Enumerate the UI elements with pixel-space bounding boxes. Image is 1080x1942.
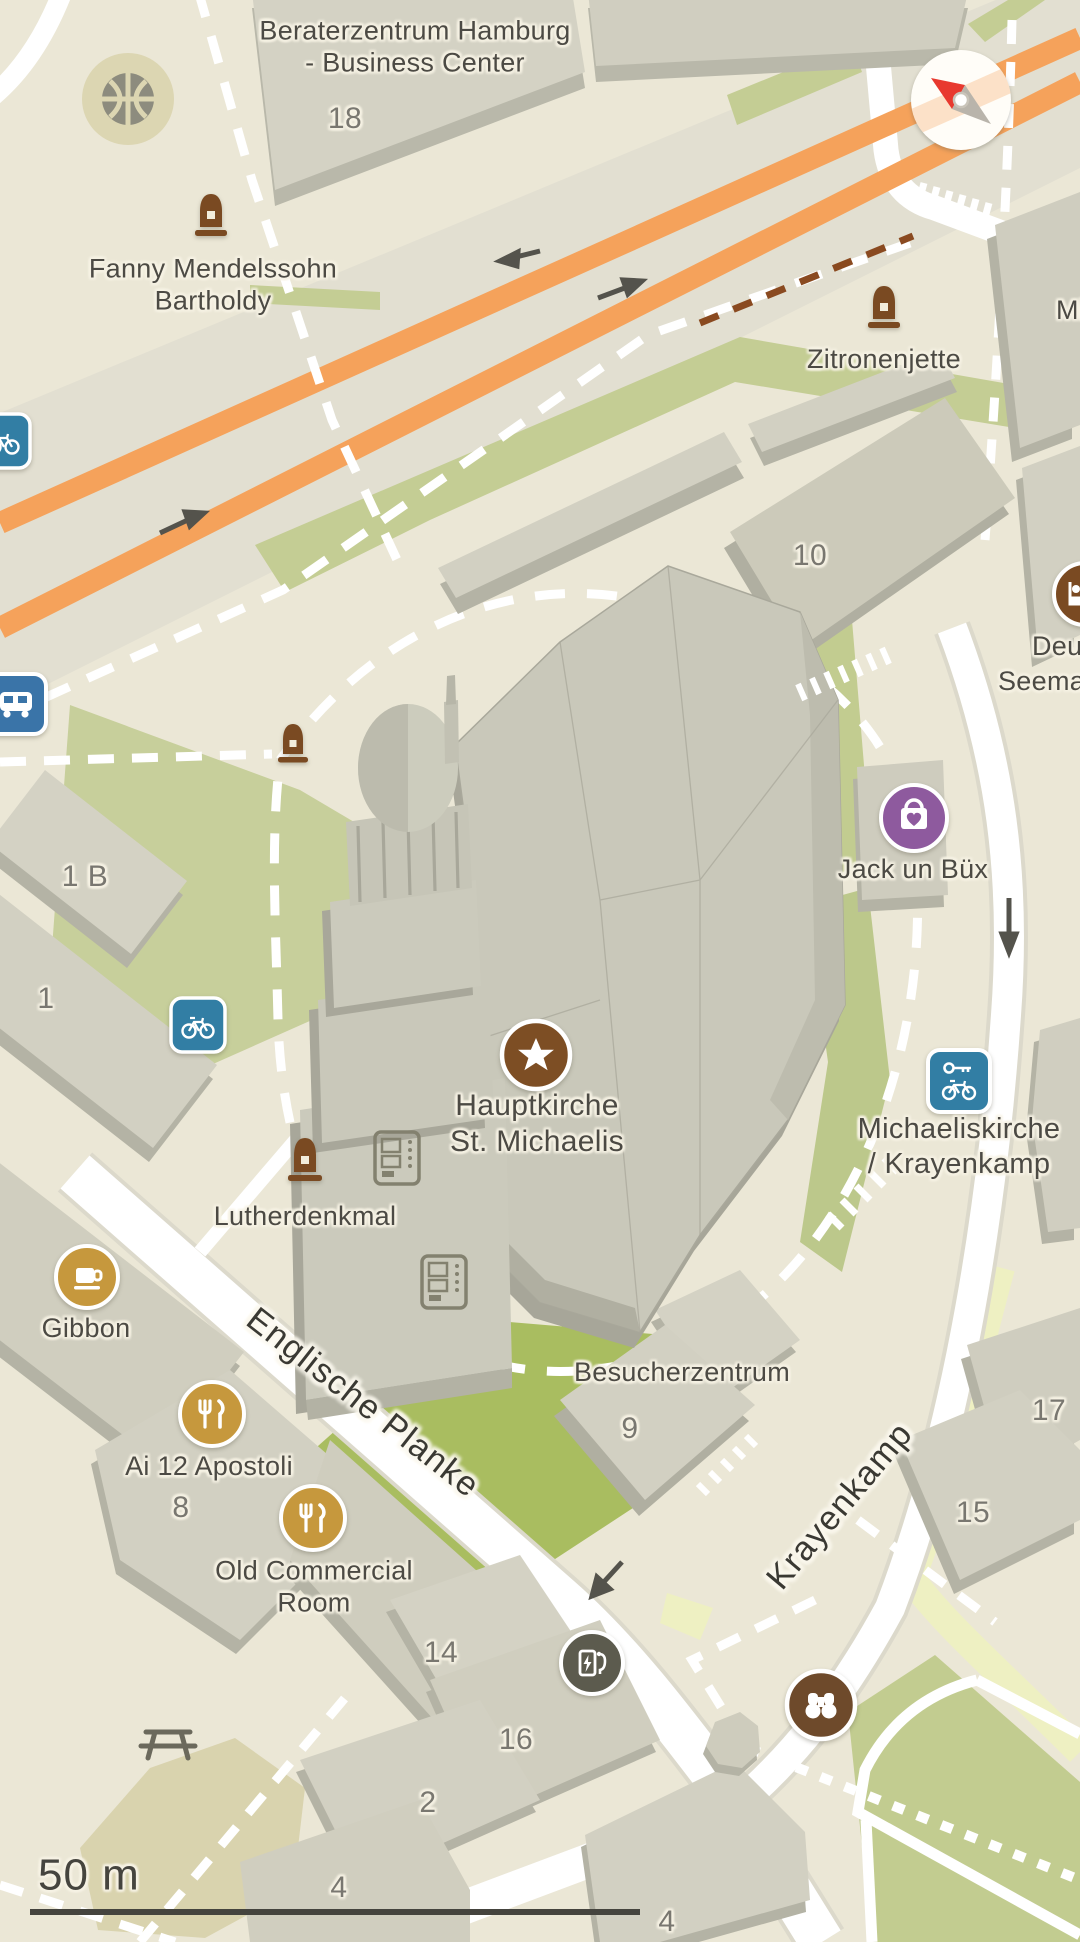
- monument-icon[interactable]: [263, 718, 323, 778]
- restaurant-icon[interactable]: [175, 1377, 249, 1451]
- shopping-heart-icon[interactable]: [876, 780, 952, 856]
- map-canvas[interactable]: [0, 0, 1080, 1942]
- fountain-icon: [99, 70, 157, 128]
- bus-stop-icon[interactable]: [0, 670, 50, 738]
- monument-icon[interactable]: [179, 188, 243, 252]
- picnic-table-icon: [136, 1723, 200, 1763]
- viewpoint-binoculars-icon[interactable]: [781, 1665, 861, 1745]
- vending-machine-icon: [369, 1127, 425, 1189]
- monument-icon[interactable]: [852, 280, 916, 344]
- cafe-icon[interactable]: [51, 1241, 123, 1313]
- restaurant-icon[interactable]: [276, 1481, 350, 1555]
- bicycle-parking-icon[interactable]: [167, 994, 229, 1056]
- vending-machine-icon: [416, 1251, 472, 1313]
- monument-icon[interactable]: [272, 1132, 338, 1198]
- ev-charging-icon[interactable]: [555, 1626, 629, 1700]
- church-star-icon[interactable]: [496, 1015, 576, 1095]
- map-stage[interactable]: Beraterzentrum Hamburg - Business Center…: [0, 0, 1080, 1942]
- hostel-icon[interactable]: [1050, 559, 1080, 629]
- compass-icon[interactable]: [906, 45, 1016, 155]
- bicycle-parking-icon[interactable]: [0, 410, 34, 472]
- bike-rental-icon[interactable]: [923, 1045, 995, 1117]
